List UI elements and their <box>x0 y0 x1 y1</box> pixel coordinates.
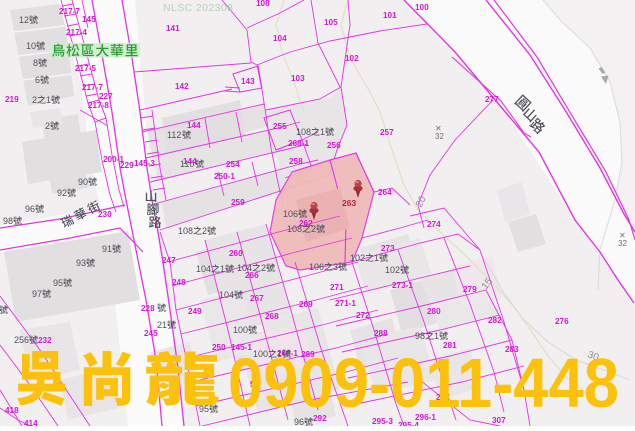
svg-text:95: 95 <box>199 404 209 414</box>
svg-text:260: 260 <box>229 249 243 258</box>
svg-text:144: 144 <box>187 121 201 130</box>
svg-text:2: 2 <box>32 95 37 105</box>
svg-text:104: 104 <box>237 263 252 273</box>
svg-text:102: 102 <box>350 253 365 263</box>
svg-text:98: 98 <box>3 216 13 226</box>
svg-text:1: 1 <box>434 331 439 341</box>
svg-text:269: 269 <box>299 300 313 309</box>
svg-text:259: 259 <box>231 198 245 207</box>
svg-text:268-1: 268-1 <box>288 139 309 148</box>
svg-text:255: 255 <box>273 122 287 131</box>
svg-text:248: 248 <box>172 278 186 287</box>
svg-text:100: 100 <box>233 325 248 335</box>
svg-text:273: 273 <box>381 244 395 253</box>
svg-text:105: 105 <box>324 18 338 27</box>
svg-text:217-8: 217-8 <box>88 101 109 110</box>
svg-text:254: 254 <box>226 160 240 169</box>
svg-text:108: 108 <box>256 0 270 8</box>
svg-text:1: 1 <box>374 253 379 263</box>
svg-text:282: 282 <box>488 316 502 325</box>
svg-text:280: 280 <box>427 307 441 316</box>
svg-text:93: 93 <box>76 258 86 268</box>
svg-text:247: 247 <box>162 256 176 265</box>
svg-text:108: 108 <box>287 224 302 234</box>
svg-text:108: 108 <box>178 226 193 236</box>
svg-text:106: 106 <box>309 262 324 272</box>
svg-text:98: 98 <box>415 331 425 341</box>
svg-text:141: 141 <box>166 24 180 33</box>
svg-text:250-1: 250-1 <box>214 172 235 181</box>
svg-text:145: 145 <box>82 15 96 24</box>
svg-text:106: 106 <box>283 209 298 219</box>
svg-text:2: 2 <box>261 263 266 273</box>
svg-text:264: 264 <box>378 188 392 197</box>
svg-text:142: 142 <box>175 82 189 91</box>
svg-text:279: 279 <box>463 285 477 294</box>
svg-text:NLSC 202308: NLSC 202308 <box>163 2 233 14</box>
svg-text:32: 32 <box>618 239 627 248</box>
svg-text:102: 102 <box>345 54 359 63</box>
svg-text:230: 230 <box>98 210 112 219</box>
svg-text:2: 2 <box>45 121 50 131</box>
svg-text:250: 250 <box>212 343 226 352</box>
svg-text:10: 10 <box>26 41 36 51</box>
svg-text:414: 414 <box>24 419 38 426</box>
svg-text:276: 276 <box>555 317 569 326</box>
svg-text:271: 271 <box>330 283 344 292</box>
svg-text:95: 95 <box>53 278 63 288</box>
svg-text:91: 91 <box>102 244 112 254</box>
svg-text:232: 232 <box>38 336 52 345</box>
svg-text:3: 3 <box>333 262 338 272</box>
svg-text:145-3: 145-3 <box>134 159 155 168</box>
svg-text:256: 256 <box>327 141 341 150</box>
svg-text:90: 90 <box>78 177 88 187</box>
svg-text:104: 104 <box>273 34 287 43</box>
svg-text:102: 102 <box>385 265 400 275</box>
svg-text:32: 32 <box>435 132 444 141</box>
svg-text:96: 96 <box>25 204 35 214</box>
svg-text:1: 1 <box>220 264 225 274</box>
svg-text:245: 245 <box>144 329 158 338</box>
svg-text:0909-011-448: 0909-011-448 <box>228 344 619 422</box>
svg-text:249: 249 <box>188 307 202 316</box>
svg-text:272: 272 <box>356 311 370 320</box>
svg-text:257: 257 <box>380 128 394 137</box>
svg-text:104: 104 <box>219 290 234 300</box>
svg-text:1: 1 <box>46 95 51 105</box>
svg-text:21: 21 <box>157 320 167 330</box>
svg-text:267: 267 <box>250 294 264 303</box>
svg-text:228: 228 <box>141 304 155 313</box>
svg-text:217-4: 217-4 <box>66 28 87 37</box>
svg-text:217-7: 217-7 <box>82 83 103 92</box>
svg-text:273-1: 273-1 <box>392 281 413 290</box>
svg-text:97: 97 <box>32 289 42 299</box>
svg-text:143: 143 <box>241 77 255 86</box>
svg-text:6: 6 <box>35 75 40 85</box>
svg-text:12: 12 <box>19 15 29 25</box>
svg-text:263: 263 <box>342 198 356 208</box>
svg-text:112: 112 <box>167 130 181 140</box>
svg-text:2: 2 <box>311 224 316 234</box>
svg-text:288: 288 <box>374 329 388 338</box>
svg-text:110: 110 <box>180 159 194 169</box>
svg-text:108: 108 <box>296 127 311 137</box>
svg-text:258: 258 <box>289 157 303 166</box>
svg-text:103: 103 <box>291 74 305 83</box>
svg-text:104: 104 <box>196 264 211 274</box>
svg-text:217-7: 217-7 <box>59 7 80 16</box>
svg-text:256: 256 <box>14 335 29 345</box>
svg-text:268: 268 <box>265 312 279 321</box>
svg-text:1: 1 <box>320 127 325 137</box>
svg-text:271-1: 271-1 <box>335 299 356 308</box>
svg-text:418: 418 <box>5 406 19 415</box>
svg-text:229: 229 <box>120 161 134 170</box>
svg-text:100: 100 <box>415 3 429 12</box>
svg-text:101: 101 <box>383 11 397 20</box>
svg-text:227: 227 <box>99 92 113 101</box>
svg-text:92: 92 <box>57 188 67 198</box>
svg-text:2: 2 <box>202 226 207 236</box>
svg-text:8: 8 <box>33 58 38 68</box>
svg-text:277: 277 <box>485 95 499 104</box>
svg-text:219: 219 <box>5 95 19 104</box>
svg-text:274: 274 <box>427 220 441 229</box>
svg-text:217-5: 217-5 <box>75 64 96 73</box>
